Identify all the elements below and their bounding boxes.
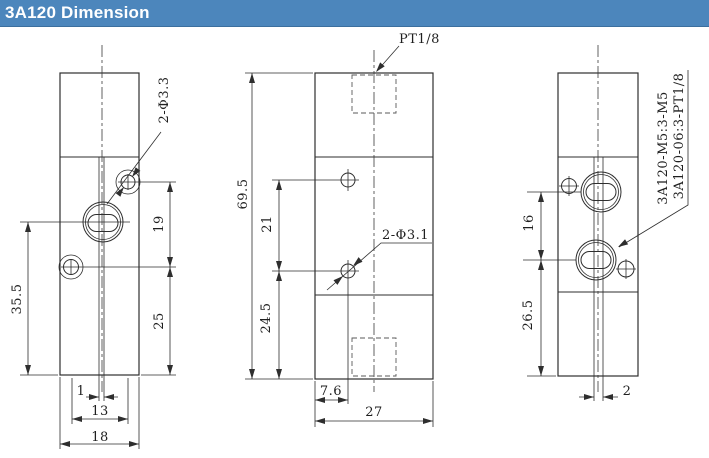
- side-hole-callout: 2-Φ3.1: [327, 228, 432, 290]
- back-small-hole-lower: [616, 259, 636, 279]
- dimension-page: 3A120 Dimension: [0, 0, 709, 458]
- back-small-hole-upper: [559, 176, 579, 196]
- back-model-06-label: 3A120-06:3-PT1/8: [672, 73, 687, 200]
- front-dim-hole-span: 19: [152, 182, 173, 267]
- side-width-label: 27: [365, 405, 383, 420]
- back-dim-lower-height: 26.5: [521, 260, 544, 376]
- front-outline: [60, 73, 139, 375]
- back-view: 16 26.5 2 3A120-M5:3-M5 3A120-06: [521, 45, 688, 401]
- front-mount-hole-bottom: [59, 255, 176, 279]
- front-dim-slot-width: 1: [77, 384, 118, 400]
- side-port-callout-label: PT1/8: [399, 32, 440, 47]
- front-hole-span-label: 19: [152, 215, 167, 233]
- side-port-callout: PT1/8: [374, 32, 440, 74]
- side-lower-hole-label: 24.5: [259, 303, 274, 334]
- front-oval-port: [20, 202, 130, 242]
- side-dim-lower-hole: 24.5: [259, 271, 282, 379]
- front-width-label: 18: [91, 430, 109, 445]
- back-slot-width-label: 2: [623, 384, 632, 399]
- back-dim-slot-width: 2: [579, 384, 631, 400]
- side-view: 69.5 21 24.5 7.6: [236, 32, 440, 427]
- back-model-m5-label: 3A120-M5:3-M5: [656, 91, 671, 205]
- front-lower-height-label: 25: [152, 312, 167, 330]
- side-overall-height-label: 69.5: [236, 179, 251, 210]
- side-dim-hole-from-edge: 7.6: [315, 384, 348, 403]
- back-lower-height-label: 26.5: [521, 300, 536, 331]
- back-model-callout: 3A120-M5:3-M5 3A120-06:3-PT1/8: [616, 70, 688, 250]
- front-slot-lines: [99, 157, 104, 401]
- dimension-drawing: 35.5 19 25 1: [0, 0, 709, 458]
- side-hole-callout-label: 2-Φ3.1: [382, 228, 429, 243]
- front-hole-hspan-label: 13: [91, 404, 109, 419]
- back-port-span-label: 16: [522, 214, 537, 232]
- back-dim-port-span: 16: [522, 192, 544, 260]
- back-oval-port-upper: [581, 172, 621, 212]
- front-slot-width-label: 1: [77, 384, 86, 399]
- front-view: 35.5 19 25 1: [10, 45, 176, 449]
- front-hole-callout-label: 2-Φ3.3: [157, 77, 172, 124]
- side-upper-hole-label: 21: [260, 215, 275, 233]
- side-dim-upper-hole: 21: [260, 180, 282, 271]
- front-dim-overall-height: 35.5: [10, 222, 58, 375]
- front-mount-hole-top: [116, 170, 176, 194]
- front-dim-lower-height: 25: [141, 267, 176, 375]
- front-overall-height-label: 35.5: [10, 284, 25, 315]
- back-oval-port-lower: [576, 240, 616, 280]
- side-hole-from-edge-label: 7.6: [320, 384, 342, 399]
